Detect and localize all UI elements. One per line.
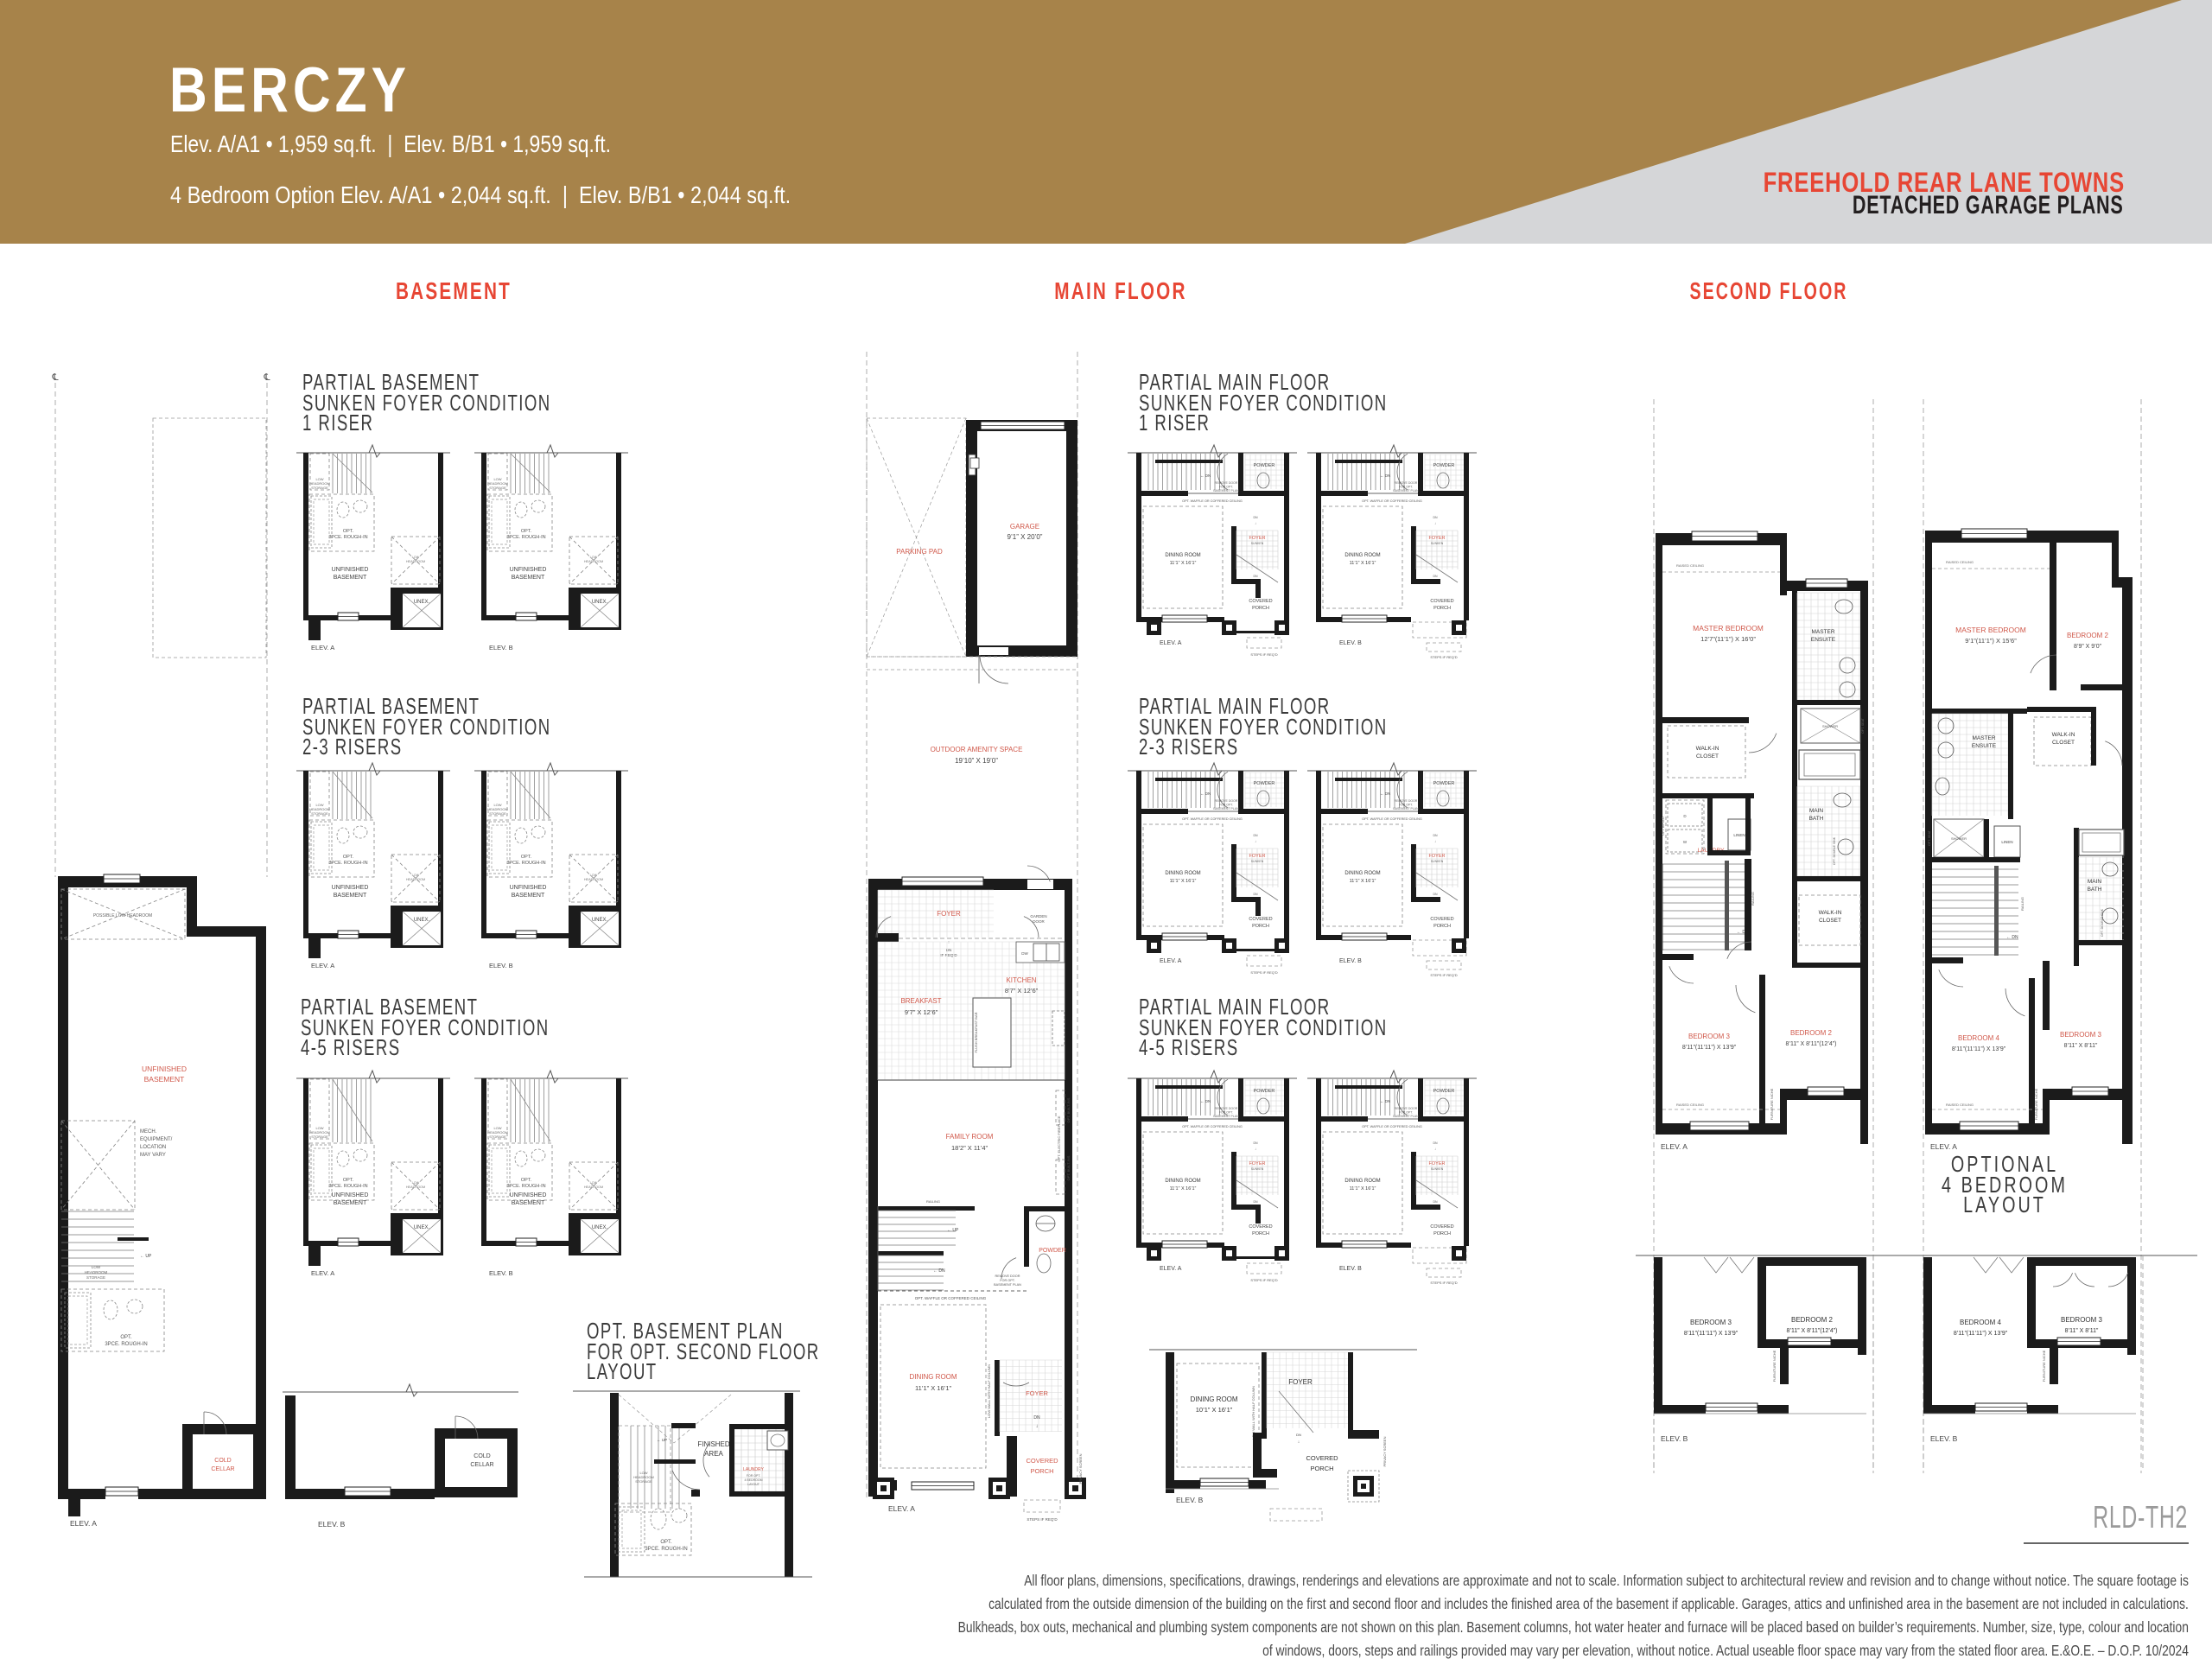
- svg-text:8’11”(11’11”) X 13’9”: 8’11”(11’11”) X 13’9”: [1684, 1331, 1738, 1337]
- svg-text:LOW: LOW: [590, 874, 598, 877]
- svg-text:AREA: AREA: [704, 1450, 723, 1458]
- svg-text:FOR OPT.: FOR OPT.: [1399, 486, 1413, 489]
- svg-text:PRIVACY SCREEN: PRIVACY SCREEN: [1382, 1436, 1387, 1466]
- svg-text:HEADROOM: HEADROOM: [584, 1185, 603, 1189]
- svg-text:3PCE. ROUGH-IN: 3PCE. ROUGH-IN: [645, 1547, 687, 1552]
- svg-text:← DN: ← DN: [1200, 474, 1211, 478]
- svg-text:DINING ROOM: DINING ROOM: [1165, 1179, 1200, 1184]
- svg-text:ELEV. A: ELEV. A: [1160, 1266, 1182, 1272]
- svg-text:FLUSH BREAKFAST BAR: FLUSH BREAKFAST BAR: [974, 1012, 978, 1052]
- svg-text:STORAGE: STORAGE: [86, 1275, 105, 1280]
- svg-text:PORCH: PORCH: [1433, 606, 1451, 611]
- svg-text:FURNITURE NICHE: FURNITURE NICHE: [1770, 1088, 1774, 1120]
- svg-text:ELEV. B: ELEV. B: [489, 644, 513, 652]
- svg-text:← UP: ← UP: [657, 1438, 667, 1442]
- svg-text:LINEN: LINEN: [2001, 840, 2012, 844]
- svg-text:← DN: ← DN: [1200, 791, 1211, 796]
- svg-text:↓: ↓: [1255, 1147, 1256, 1151]
- svg-text:FOR OPT.: FOR OPT.: [1219, 804, 1233, 807]
- svg-text:PRIVACY SCREEN: PRIVACY SCREEN: [1078, 1453, 1083, 1484]
- svg-text:11’1” X 16’1”: 11’1” X 16’1”: [1170, 561, 1197, 566]
- svg-text:8’11” X 8’11”: 8’11” X 8’11”: [2065, 1328, 2099, 1334]
- svg-text:UNFINISHED: UNFINISHED: [510, 567, 547, 573]
- svg-text:DINING ROOM: DINING ROOM: [1165, 553, 1200, 558]
- svg-text:DN: DN: [1253, 893, 1258, 896]
- svg-text:8’11” X 8’11”(12’4”): 8’11” X 8’11”(12’4”): [1787, 1328, 1838, 1334]
- svg-text:REMOVE DOOR: REMOVE DOOR: [1395, 1107, 1418, 1110]
- svg-text:ELEV. A: ELEV. A: [70, 1519, 97, 1528]
- svg-text:COLD: COLD: [214, 1458, 231, 1464]
- svg-text:FINISHED: FINISHED: [697, 1440, 730, 1448]
- svg-text:PORCH: PORCH: [1433, 924, 1451, 929]
- svg-text:BASEMENT PLAN: BASEMENT PLAN: [994, 1283, 1021, 1287]
- svg-text:COVERED: COVERED: [1430, 1224, 1453, 1230]
- svg-text:UNFINISHED: UNFINISHED: [510, 885, 547, 891]
- svg-text:FOR OPT.: FOR OPT.: [1399, 1111, 1413, 1115]
- svg-text:BEDROOM 3: BEDROOM 3: [2060, 1031, 2102, 1039]
- svg-text:ELEV. A: ELEV. A: [311, 962, 334, 969]
- svg-text:ELEV. A: ELEV. A: [1160, 958, 1182, 964]
- svg-text:BASEMENT: BASEMENT: [334, 575, 367, 581]
- svg-text:BASEMENT: BASEMENT: [512, 575, 545, 581]
- svg-text:MASTER BEDROOM: MASTER BEDROOM: [1693, 624, 1764, 632]
- svg-text:BASEMENT PLAN: BASEMENT PLAN: [1213, 489, 1239, 493]
- svg-text:UNFINISHED: UNFINISHED: [332, 885, 369, 891]
- svg-text:LAYOUT: LAYOUT: [747, 1483, 760, 1486]
- svg-text:9’7” X 12’6”: 9’7” X 12’6”: [905, 1008, 938, 1016]
- svg-text:DN: DN: [1433, 893, 1438, 896]
- svg-text:HEADROOM: HEADROOM: [406, 1185, 425, 1189]
- svg-text:RAISED CEILING: RAISED CEILING: [1946, 560, 1974, 564]
- svg-text:STORAGE: STORAGE: [635, 1479, 652, 1484]
- svg-text:COVERED: COVERED: [1430, 917, 1453, 922]
- svg-text:BASEMENT PLAN: BASEMENT PLAN: [1393, 807, 1419, 810]
- svg-text:11’1” X 16’1”: 11’1” X 16’1”: [1350, 561, 1376, 566]
- svg-text:REMOVE DOOR: REMOVE DOOR: [1395, 799, 1418, 803]
- svg-text:OPT.: OPT.: [521, 855, 532, 860]
- svg-text:RAILING: RAILING: [926, 1199, 940, 1204]
- svg-text:← UP: ← UP: [947, 1228, 959, 1233]
- svg-text:ELEV. A: ELEV. A: [888, 1504, 915, 1513]
- svg-text:UNEX.: UNEX.: [592, 1225, 608, 1230]
- svg-text:↓: ↓: [1298, 1440, 1300, 1445]
- svg-text:BEDROOM 2: BEDROOM 2: [1790, 1029, 1833, 1037]
- svg-text:DN: DN: [1033, 1415, 1040, 1421]
- svg-text:DINING ROOM: DINING ROOM: [909, 1373, 957, 1381]
- svg-text:BASEMENT PLAN: BASEMENT PLAN: [1213, 1115, 1239, 1118]
- svg-text:DN: DN: [1253, 1141, 1258, 1145]
- svg-text:POWDER: POWDER: [1433, 781, 1455, 786]
- svg-text:↑: ↑: [948, 940, 950, 945]
- svg-text:ELEV. A: ELEV. A: [311, 644, 334, 652]
- svg-text:OPT. ELECTRIC FIREPLACE: OPT. ELECTRIC FIREPLACE: [1057, 1116, 1061, 1161]
- svg-text:LOW: LOW: [590, 556, 598, 559]
- svg-text:MAIN: MAIN: [2088, 879, 2102, 885]
- svg-text:LOW: LOW: [412, 556, 420, 559]
- svg-text:UNFINISHED: UNFINISHED: [332, 1192, 369, 1198]
- svg-text:LINEN: LINEN: [1733, 833, 1745, 837]
- svg-text:OPT. WAFFLE OR COFFERED CEILIN: OPT. WAFFLE OR COFFERED CEILING: [1182, 817, 1243, 821]
- svg-text:POWDER: POWDER: [1433, 463, 1455, 468]
- svg-text:PORCH: PORCH: [1252, 924, 1269, 929]
- svg-text:HEADROOM: HEADROOM: [406, 878, 425, 881]
- svg-text:SHOWER: SHOWER: [1951, 836, 1967, 841]
- svg-text:STORAGE: STORAGE: [489, 1135, 506, 1139]
- svg-text:POWDER: POWDER: [1254, 781, 1275, 786]
- svg-text:OPT.: OPT.: [343, 1178, 354, 1183]
- svg-text:REMOVE DOOR: REMOVE DOOR: [1215, 1107, 1238, 1110]
- svg-text:STORAGE: STORAGE: [311, 811, 328, 816]
- svg-text:DN: DN: [1253, 834, 1258, 837]
- svg-text:9’1”(11’1”) X 15’6”: 9’1”(11’1”) X 15’6”: [1965, 637, 2017, 645]
- svg-text:BASEMENT PLAN: BASEMENT PLAN: [1393, 1115, 1419, 1118]
- svg-text:DOOR: DOOR: [1033, 919, 1045, 924]
- svg-text:← DN: ← DN: [1380, 791, 1390, 796]
- svg-text:MASTER: MASTER: [1811, 629, 1834, 635]
- svg-text:UNEX.: UNEX.: [414, 1225, 430, 1230]
- svg-text:DINING ROOM: DINING ROOM: [1165, 871, 1200, 876]
- svg-text:FAMILY ROOM: FAMILY ROOM: [946, 1133, 994, 1141]
- svg-text:LOW: LOW: [412, 1181, 420, 1185]
- svg-text:OPT. SEAT: OPT. SEAT: [1928, 829, 1931, 845]
- svg-text:↓: ↓: [1434, 1147, 1436, 1151]
- svg-text:12’7”(11’1”) X 16’0”: 12’7”(11’1”) X 16’0”: [1700, 635, 1756, 643]
- svg-text:STEPS IF REQ’D: STEPS IF REQ’D: [1430, 973, 1457, 977]
- svg-text:4 BEDROOM: 4 BEDROOM: [744, 1478, 762, 1482]
- svg-text:CLOSET: CLOSET: [2052, 740, 2075, 746]
- svg-text:LOCATION: LOCATION: [140, 1145, 166, 1150]
- svg-text:OPT.: OPT.: [343, 855, 354, 860]
- svg-text:↓: ↓: [1434, 839, 1436, 843]
- svg-text:DN: DN: [1433, 1200, 1438, 1204]
- svg-text:COLD: COLD: [474, 1453, 490, 1459]
- svg-text:STEPS IF REQ’D: STEPS IF REQ’D: [1027, 1517, 1058, 1522]
- svg-text:FOYER: FOYER: [1249, 536, 1266, 541]
- svg-text:ENSUITE: ENSUITE: [1811, 637, 1836, 643]
- svg-text:OPT. WAFFLE OR COFFERED CEILIN: OPT. WAFFLE OR COFFERED CEILING: [1362, 499, 1422, 503]
- svg-text:PORCH: PORCH: [1310, 1465, 1333, 1472]
- svg-text:UNEX.: UNEX.: [592, 600, 608, 605]
- svg-text:OPT.: OPT.: [521, 1178, 532, 1183]
- svg-text:↓: ↓: [1434, 521, 1436, 525]
- svg-text:ELEV. B: ELEV. B: [318, 1520, 346, 1529]
- svg-text:SUNKEN: SUNKEN: [1251, 1167, 1264, 1171]
- svg-text:FOYER: FOYER: [1429, 536, 1446, 541]
- svg-text:BATH: BATH: [1809, 816, 1824, 822]
- svg-text:11’1” X 16’1”: 11’1” X 16’1”: [1350, 879, 1376, 884]
- svg-text:MASTER: MASTER: [1972, 735, 1995, 741]
- svg-text:FOYER: FOYER: [937, 910, 961, 918]
- svg-text:FURNITURE NICHE: FURNITURE NICHE: [2034, 1088, 2038, 1120]
- svg-text:ELEV. A: ELEV. A: [1930, 1142, 1957, 1151]
- svg-text:DN: DN: [1253, 1200, 1258, 1204]
- svg-text:MAY VARY: MAY VARY: [140, 1153, 166, 1158]
- svg-text:OPT. BUILT-INS: OPT. BUILT-INS: [1066, 1097, 1071, 1122]
- svg-text:MAIN: MAIN: [1809, 808, 1824, 814]
- svg-text:ELEV. A: ELEV. A: [1661, 1142, 1688, 1151]
- svg-text:COVERED: COVERED: [1249, 917, 1272, 922]
- svg-text:FURNITURE NICHE: FURNITURE NICHE: [1772, 1350, 1777, 1382]
- svg-text:D: D: [1683, 814, 1687, 818]
- svg-text:BASEMENT: BASEMENT: [512, 1200, 545, 1206]
- svg-text:OPT. WAFFLE OR COFFERED CEILIN: OPT. WAFFLE OR COFFERED CEILING: [1362, 1125, 1422, 1128]
- svg-text:BASEMENT PLAN: BASEMENT PLAN: [1213, 807, 1239, 810]
- svg-text:3PCE. ROUGH-IN: 3PCE. ROUGH-IN: [105, 1342, 147, 1347]
- svg-text:FOYER: FOYER: [1249, 1161, 1266, 1166]
- svg-text:CELLAR: CELLAR: [211, 1466, 234, 1472]
- svg-text:BASEMENT: BASEMENT: [512, 893, 545, 899]
- svg-text:← DN: ← DN: [1200, 1099, 1211, 1103]
- svg-text:STORAGE: STORAGE: [489, 486, 506, 490]
- svg-text:↓: ↓: [1255, 521, 1256, 525]
- svg-text:PORCH: PORCH: [1252, 606, 1269, 611]
- svg-text:FOR OPT.: FOR OPT.: [1000, 1279, 1015, 1282]
- svg-text:MECH.: MECH.: [140, 1129, 157, 1135]
- svg-text:DINING ROOM: DINING ROOM: [1344, 871, 1380, 876]
- svg-text:3PCE. ROUGH-IN: 3PCE. ROUGH-IN: [506, 861, 545, 866]
- svg-text:3PCE. ROUGH-IN: 3PCE. ROUGH-IN: [328, 1184, 367, 1189]
- svg-text:SUNKEN: SUNKEN: [1251, 542, 1264, 545]
- svg-text:DINING ROOM: DINING ROOM: [1190, 1395, 1237, 1403]
- svg-text:CLOSET: CLOSET: [1696, 753, 1719, 760]
- svg-text:REMOVE DOOR: REMOVE DOOR: [1395, 481, 1418, 485]
- svg-text:18’2” X 11’4”: 18’2” X 11’4”: [951, 1144, 988, 1152]
- svg-text:℄: ℄: [263, 372, 270, 383]
- svg-text:WALK-IN: WALK-IN: [2052, 732, 2075, 738]
- svg-text:COVERED: COVERED: [1249, 599, 1272, 604]
- svg-text:ENSUITE: ENSUITE: [1972, 743, 1997, 749]
- svg-text:ELEV. B: ELEV. B: [1176, 1496, 1204, 1504]
- svg-text:STEPS IF REQ’D: STEPS IF REQ’D: [1250, 652, 1277, 657]
- svg-text:KITCHEN: KITCHEN: [1006, 976, 1036, 984]
- svg-text:FOR OPT.: FOR OPT.: [1219, 486, 1233, 489]
- svg-text:LOW WALL WITH HALF COLUMN: LOW WALL WITH HALF COLUMN: [987, 1364, 991, 1418]
- svg-text:FOYER: FOYER: [1288, 1378, 1313, 1386]
- svg-text:COVERED: COVERED: [1430, 599, 1453, 604]
- svg-text:BASEMENT: BASEMENT: [144, 1075, 185, 1084]
- svg-text:POWDER: POWDER: [1254, 1089, 1275, 1094]
- svg-text:ELEV. B: ELEV. B: [1661, 1434, 1688, 1443]
- svg-text:BEDROOM 3: BEDROOM 3: [1688, 1033, 1731, 1040]
- svg-text:POSSIBLE LOW HEADROOM: POSSIBLE LOW HEADROOM: [93, 913, 152, 918]
- svg-text:FOYER: FOYER: [1429, 1161, 1446, 1166]
- svg-text:OPT. WAFFLE OR COFFERED CEILIN: OPT. WAFFLE OR COFFERED CEILING: [1182, 499, 1243, 503]
- svg-text:← DN: ← DN: [1380, 474, 1390, 478]
- svg-text:UNFINISHED: UNFINISHED: [142, 1065, 187, 1073]
- svg-text:SUNKEN: SUNKEN: [1431, 542, 1444, 545]
- svg-text:OPT. DOUBLE SINK: OPT. DOUBLE SINK: [1833, 836, 1836, 865]
- svg-text:UNEX.: UNEX.: [414, 600, 430, 605]
- svg-text:LOW: LOW: [412, 874, 420, 877]
- svg-text:DN: DN: [1253, 516, 1258, 519]
- svg-text:STORAGE: STORAGE: [311, 486, 328, 490]
- svg-text:DN: DN: [1433, 575, 1438, 578]
- svg-text:8’7” X 12’6”: 8’7” X 12’6”: [1005, 987, 1039, 995]
- svg-text:CLOSET: CLOSET: [1819, 918, 1841, 924]
- svg-text:LOW WALL WITH HALF COLUMN: LOW WALL WITH HALF COLUMN: [1251, 1386, 1255, 1440]
- svg-text:DW: DW: [1021, 951, 1028, 956]
- svg-text:POWDER: POWDER: [1254, 463, 1275, 468]
- svg-text:UNFINISHED: UNFINISHED: [332, 567, 369, 573]
- svg-text:FOYER: FOYER: [1026, 1389, 1048, 1397]
- svg-text:WALK-IN: WALK-IN: [1696, 746, 1719, 752]
- svg-text:℄: ℄: [51, 372, 58, 383]
- svg-text:BASEMENT: BASEMENT: [334, 893, 367, 899]
- svg-text:8’11” X 8’11”: 8’11” X 8’11”: [2064, 1043, 2098, 1049]
- svg-text:FOYER: FOYER: [1429, 854, 1446, 859]
- svg-text:WALK-IN: WALK-IN: [1819, 910, 1842, 916]
- svg-text:OPT.: OPT.: [660, 1540, 672, 1545]
- svg-text:OPT. BUILT-INS: OPT. BUILT-INS: [1066, 1155, 1071, 1180]
- svg-text:STORAGE: STORAGE: [489, 811, 506, 816]
- svg-text:8’9” X 9’0”: 8’9” X 9’0”: [2074, 644, 2102, 650]
- svg-text:OPT. DOUBLE SINK: OPT. DOUBLE SINK: [2101, 908, 2104, 937]
- svg-text:11’1” X 16’1”: 11’1” X 16’1”: [1170, 879, 1197, 884]
- svg-text:ELEV. B: ELEV. B: [1339, 958, 1362, 964]
- svg-text:SHOWER: SHOWER: [1822, 724, 1838, 728]
- svg-text:↓: ↓: [1255, 839, 1256, 843]
- svg-text:DINING ROOM: DINING ROOM: [1344, 1179, 1380, 1184]
- svg-text:GARDEN: GARDEN: [1030, 914, 1046, 918]
- svg-text:3PCE. ROUGH-IN: 3PCE. ROUGH-IN: [506, 535, 545, 540]
- svg-text:STEPS IF REQ’D: STEPS IF REQ’D: [1430, 655, 1457, 659]
- svg-text:SUNKEN: SUNKEN: [1431, 860, 1444, 863]
- svg-text:DN: DN: [1253, 575, 1258, 578]
- svg-text:PORCH: PORCH: [1433, 1231, 1451, 1236]
- svg-text:HEADROOM: HEADROOM: [85, 1270, 108, 1274]
- svg-text:DN: DN: [1296, 1433, 1301, 1437]
- svg-text:CELLAR: CELLAR: [470, 1462, 493, 1468]
- svg-text:8’11”(11’11”) X 13’9”: 8’11”(11’11”) X 13’9”: [1954, 1331, 2008, 1337]
- svg-text:BEDROOM 2: BEDROOM 2: [2067, 632, 2109, 639]
- svg-text:← DN: ← DN: [933, 1268, 945, 1274]
- svg-text:← UP: ← UP: [140, 1254, 152, 1259]
- svg-text:10’1” X 16’1”: 10’1” X 16’1”: [1196, 1406, 1233, 1414]
- svg-text:DN: DN: [1433, 834, 1438, 837]
- svg-text:POWDER: POWDER: [1039, 1248, 1066, 1254]
- svg-text:HEADROOM: HEADROOM: [584, 560, 603, 563]
- svg-text:ELEV. A: ELEV. A: [311, 1269, 334, 1277]
- svg-text:LOW: LOW: [92, 1265, 101, 1269]
- svg-text:11’1” X 16’1”: 11’1” X 16’1”: [915, 1384, 951, 1392]
- svg-text:← DN: ← DN: [1380, 1099, 1390, 1103]
- svg-text:BATH: BATH: [2088, 887, 2102, 893]
- svg-text:BASEMENT PLAN: BASEMENT PLAN: [1393, 489, 1419, 493]
- svg-text:COVERED: COVERED: [1306, 1454, 1338, 1462]
- svg-text:OPT.: OPT.: [120, 1335, 132, 1340]
- svg-text:OPT. WAFFLE OR COFFERED CEILIN: OPT. WAFFLE OR COFFERED CEILING: [915, 1296, 987, 1300]
- svg-text:UNFINISHED: UNFINISHED: [510, 1192, 547, 1198]
- svg-text:LOW: LOW: [590, 1181, 598, 1185]
- svg-text:PORCH: PORCH: [1030, 1467, 1053, 1475]
- svg-text:REMOVE DOOR: REMOVE DOOR: [995, 1274, 1020, 1278]
- svg-text:ELEV. B: ELEV. B: [489, 1269, 513, 1277]
- svg-text:OPT. SEAT: OPT. SEAT: [1861, 717, 1865, 733]
- svg-text:BASEMENT: BASEMENT: [334, 1200, 367, 1206]
- svg-text:ELEV. B: ELEV. B: [489, 962, 513, 969]
- svg-text:DN: DN: [1433, 1141, 1438, 1145]
- svg-text:HEADROOM: HEADROOM: [584, 878, 603, 881]
- svg-text:11’1” X 16’1”: 11’1” X 16’1”: [1350, 1186, 1376, 1192]
- svg-text:IF REQ’D: IF REQ’D: [940, 953, 957, 957]
- svg-text:COVERED: COVERED: [1249, 1224, 1272, 1230]
- svg-text:OPT.: OPT.: [343, 529, 354, 534]
- svg-text:RAISED CEILING: RAISED CEILING: [1676, 1103, 1704, 1107]
- svg-text:LAUNDRY: LAUNDRY: [743, 1467, 764, 1472]
- svg-text:BEDROOM 3: BEDROOM 3: [2061, 1316, 2103, 1324]
- svg-text:PORCH: PORCH: [1252, 1231, 1269, 1236]
- svg-text:FOYER: FOYER: [1249, 854, 1266, 859]
- svg-text:STEPS IF REQ’D: STEPS IF REQ’D: [1430, 1281, 1457, 1285]
- svg-text:COVERED: COVERED: [1026, 1457, 1058, 1465]
- svg-text:← DN: ← DN: [2006, 935, 2018, 940]
- svg-text:MASTER BEDROOM: MASTER BEDROOM: [1955, 626, 2026, 634]
- svg-text:REMOVE DOOR: REMOVE DOOR: [1215, 481, 1238, 485]
- svg-text:SUNKEN: SUNKEN: [1431, 1167, 1444, 1171]
- svg-text:BEDROOM 4: BEDROOM 4: [1960, 1319, 2002, 1326]
- svg-text:DN: DN: [1433, 516, 1438, 519]
- svg-text:3PCE. ROUGH-IN: 3PCE. ROUGH-IN: [506, 1184, 545, 1189]
- svg-text:OPT. WAFFLE OR COFFERED CEILIN: OPT. WAFFLE OR COFFERED CEILING: [1362, 817, 1422, 821]
- svg-text:POWDER: POWDER: [1433, 1089, 1455, 1094]
- svg-text:BEDROOM 2: BEDROOM 2: [1791, 1316, 1834, 1324]
- svg-text:ELEV. B: ELEV. B: [1339, 640, 1362, 646]
- svg-text:8’11”(11’11”) X 13’9”: 8’11”(11’11”) X 13’9”: [1952, 1046, 2006, 1052]
- svg-text:8’11” X 8’11”(12’4”): 8’11” X 8’11”(12’4”): [1786, 1041, 1837, 1047]
- svg-text:FURNITURE NICHE: FURNITURE NICHE: [2042, 1350, 2046, 1382]
- svg-text:W: W: [1683, 840, 1688, 844]
- svg-text:FOR OPT.: FOR OPT.: [1399, 804, 1413, 807]
- svg-text:SUNKEN: SUNKEN: [1251, 860, 1264, 863]
- svg-text:11’1” X 16’1”: 11’1” X 16’1”: [1170, 1186, 1197, 1192]
- svg-text:ELEV. B: ELEV. B: [1339, 1266, 1362, 1272]
- svg-text:UNEX.: UNEX.: [592, 918, 608, 923]
- svg-text:STORAGE: STORAGE: [311, 1135, 328, 1139]
- svg-text:BEDROOM 4: BEDROOM 4: [1958, 1034, 2000, 1042]
- svg-text:BREAKFAST: BREAKFAST: [900, 997, 941, 1005]
- svg-text:3PCE. ROUGH-IN: 3PCE. ROUGH-IN: [328, 861, 367, 866]
- svg-text:OPT.: OPT.: [521, 529, 532, 534]
- svg-text:STEPS IF REQ’D: STEPS IF REQ’D: [1250, 970, 1277, 975]
- svg-text:BEDROOM 3: BEDROOM 3: [1690, 1319, 1732, 1326]
- svg-text:8’11”(11’11”) X 13’9”: 8’11”(11’11”) X 13’9”: [1682, 1045, 1737, 1051]
- svg-text:RAISED CEILING: RAISED CEILING: [1676, 563, 1704, 568]
- svg-text:HEADROOM: HEADROOM: [406, 560, 425, 563]
- svg-text:STEPS IF REQ’D: STEPS IF REQ’D: [1250, 1278, 1277, 1282]
- svg-text:EQUIPMENT/: EQUIPMENT/: [140, 1137, 173, 1142]
- svg-text:RAILING: RAILING: [2020, 897, 2024, 911]
- svg-text:ELEV. A: ELEV. A: [1160, 640, 1182, 646]
- svg-text:3PCE. ROUGH-IN: 3PCE. ROUGH-IN: [328, 535, 367, 540]
- svg-text:OPT. BIFOLD: OPT. BIFOLD: [1662, 817, 1665, 836]
- svg-text:OPT. WAFFLE OR COFFERED CEILIN: OPT. WAFFLE OR COFFERED CEILING: [1182, 1125, 1243, 1128]
- svg-text:ELEV. B: ELEV. B: [1930, 1434, 1958, 1443]
- svg-text:REMOVE DOOR: REMOVE DOOR: [1215, 799, 1238, 803]
- svg-text:FOR OPT.: FOR OPT.: [1219, 1111, 1233, 1115]
- svg-text:FOR OPT.: FOR OPT.: [747, 1474, 760, 1478]
- svg-text:DINING ROOM: DINING ROOM: [1344, 553, 1380, 558]
- svg-text:↓: ↓: [1036, 1424, 1039, 1429]
- svg-text:RAISED CEILING: RAISED CEILING: [1946, 1103, 1974, 1107]
- svg-text:UNEX.: UNEX.: [414, 918, 430, 923]
